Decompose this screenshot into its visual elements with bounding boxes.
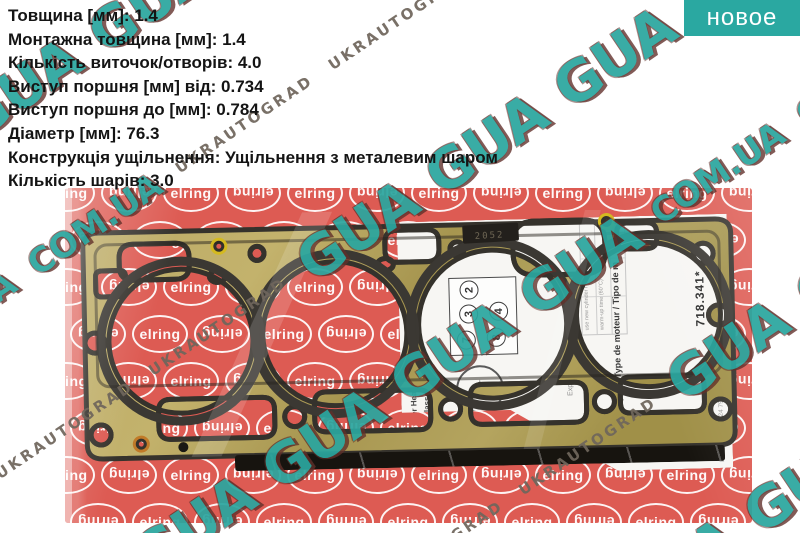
spec-line-layers: Кількість шарів: 3.0 — [8, 169, 498, 193]
spec-line-notches: Кількість виточок/отворів: 4.0 — [8, 51, 498, 75]
spec-line-mount-thickness: Монтажна товщина [мм]: 1.4 — [8, 28, 498, 52]
spec-line-piston-from: Виступ поршня [мм] від: 0.734 — [8, 75, 498, 99]
spec-line-diameter: Діаметр [мм]: 76.3 — [8, 122, 498, 146]
new-badge-label: новое — [707, 4, 778, 32]
spec-line-thickness: Товщина [мм]: 1.4 — [8, 4, 498, 28]
elring-logo: elring — [535, 188, 591, 212]
new-badge: новое — [684, 0, 800, 36]
elring-logo: elring — [659, 188, 715, 212]
watermark-text: GUA — [542, 0, 689, 122]
spec-list: Товщина [мм]: 1.4 Монтажна товщина [мм]:… — [8, 4, 498, 193]
product-photo: elringelringelringelringelringelringelri… — [65, 188, 752, 523]
stamp-text: 2052 — [475, 230, 505, 242]
watermark-text: GUA — [783, 200, 800, 328]
elring-logo: elring — [721, 188, 752, 212]
elring-logo: elring — [597, 188, 653, 212]
watermark-text: COM.UA — [0, 263, 24, 382]
spec-line-construction: Конструкція ущільнення: Ущільнення з мет… — [8, 146, 498, 170]
spec-line-piston-to: Виступ поршня до [мм]: 0.784 — [8, 98, 498, 122]
